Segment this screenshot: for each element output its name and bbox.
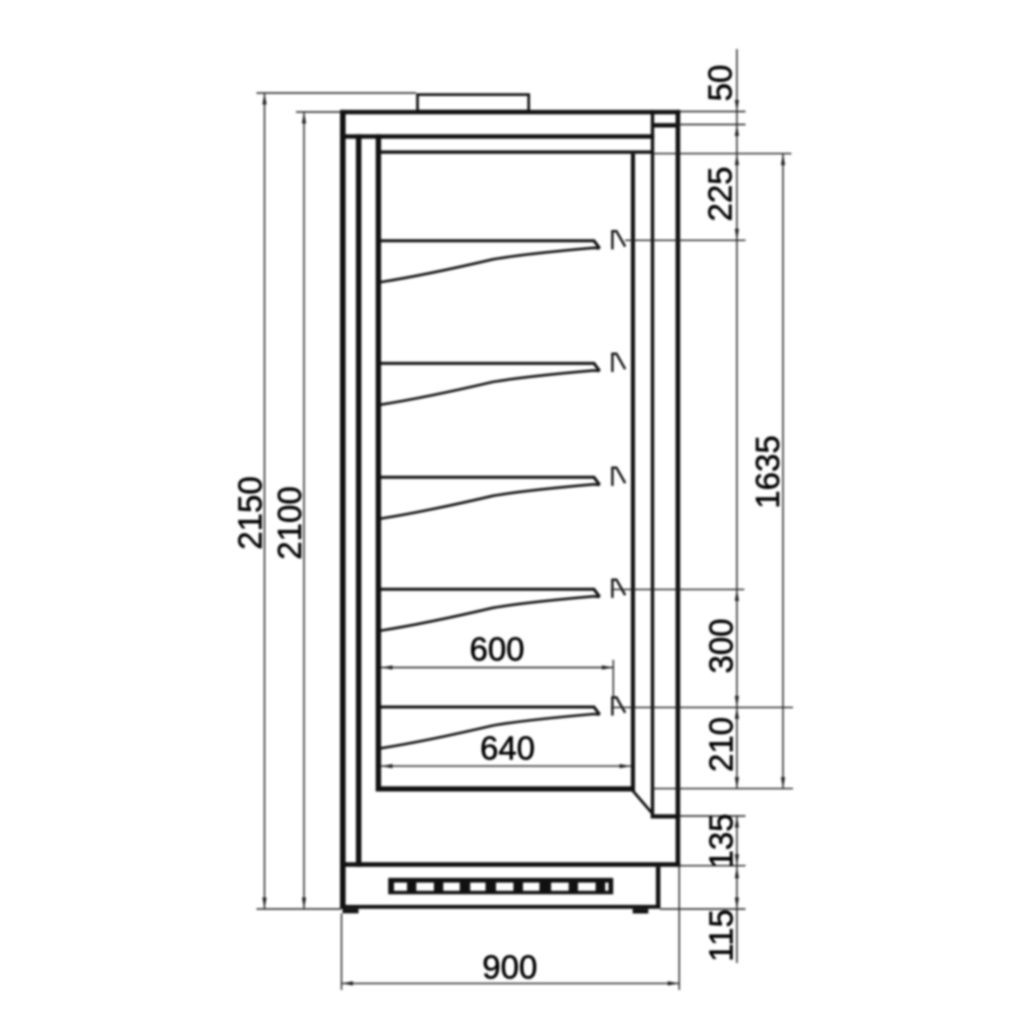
svg-text:300: 300 — [703, 618, 740, 673]
svg-text:135: 135 — [703, 813, 740, 868]
svg-text:600: 600 — [469, 631, 524, 668]
svg-text:210: 210 — [703, 717, 740, 772]
svg-text:900: 900 — [482, 948, 537, 985]
svg-text:50: 50 — [702, 65, 739, 102]
svg-text:225: 225 — [702, 166, 739, 221]
svg-text:115: 115 — [703, 909, 740, 962]
svg-text:1635: 1635 — [749, 435, 786, 508]
svg-text:2100: 2100 — [271, 486, 308, 559]
svg-text:640: 640 — [480, 729, 535, 766]
svg-text:2150: 2150 — [232, 476, 269, 549]
